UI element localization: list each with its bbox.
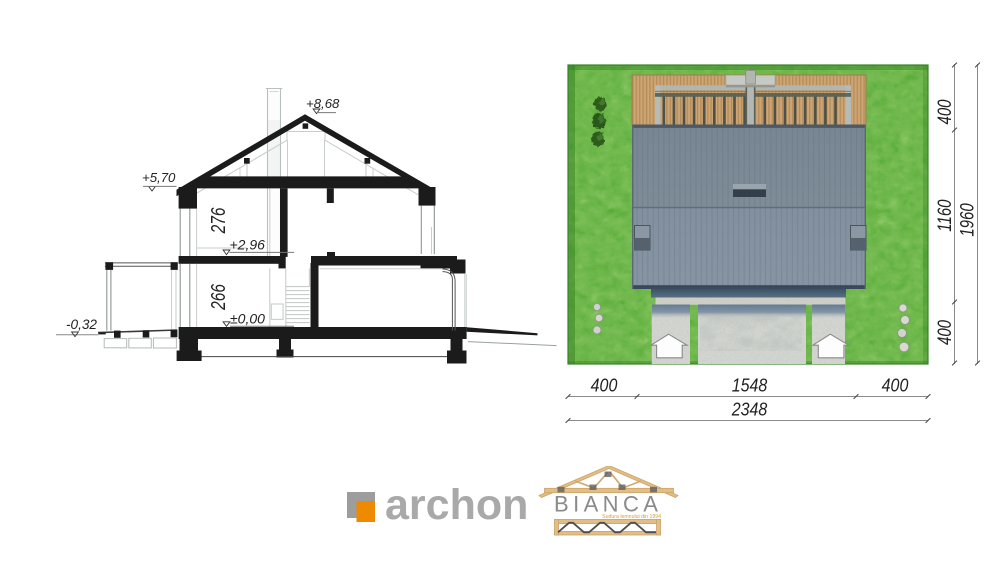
svg-text:±0,00: ±0,00	[230, 311, 265, 327]
svg-text:400: 400	[933, 320, 956, 345]
svg-text:BIANCA: BIANCA	[554, 492, 662, 517]
svg-text:archon: archon	[385, 481, 528, 529]
svg-text:+8,68: +8,68	[306, 96, 340, 111]
svg-text:400: 400	[933, 99, 956, 124]
svg-text:400: 400	[882, 374, 909, 396]
svg-text:-0,32: -0,32	[66, 317, 97, 332]
svg-text:276: 276	[207, 208, 229, 235]
svg-text:1160: 1160	[933, 199, 956, 231]
svg-text:1960: 1960	[955, 203, 978, 237]
svg-text:+5,70: +5,70	[142, 170, 176, 185]
svg-text:400: 400	[591, 374, 618, 396]
svg-text:2348: 2348	[731, 398, 768, 420]
svg-text:+2,96: +2,96	[230, 237, 266, 253]
svg-text:1548: 1548	[732, 374, 768, 396]
svg-text:266: 266	[207, 284, 229, 311]
